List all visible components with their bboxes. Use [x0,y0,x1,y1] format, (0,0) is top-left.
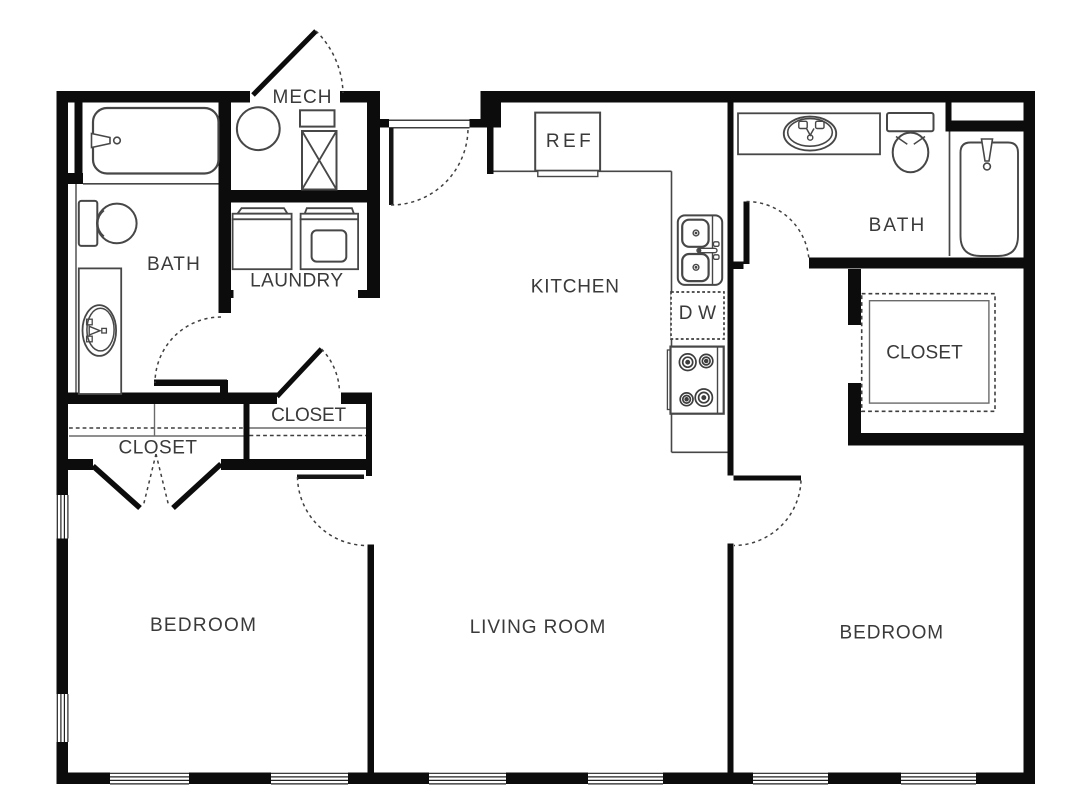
svg-text:BEDROOM: BEDROOM [840,623,944,644]
svg-text:MECH: MECH [273,87,333,108]
svg-text:BATH: BATH [147,254,201,275]
svg-text:KITCHEN: KITCHEN [531,277,620,298]
svg-text:DW: DW [679,303,722,324]
svg-text:BEDROOM: BEDROOM [150,615,257,636]
svg-text:BATH: BATH [869,215,927,236]
svg-text:CLOSET: CLOSET [118,438,197,459]
svg-text:CLOSET: CLOSET [271,405,346,426]
svg-text:CLOSET: CLOSET [886,343,963,364]
svg-text:REF: REF [546,131,594,152]
svg-text:LAUNDRY: LAUNDRY [250,270,343,291]
svg-text:LIVING ROOM: LIVING ROOM [470,617,607,638]
